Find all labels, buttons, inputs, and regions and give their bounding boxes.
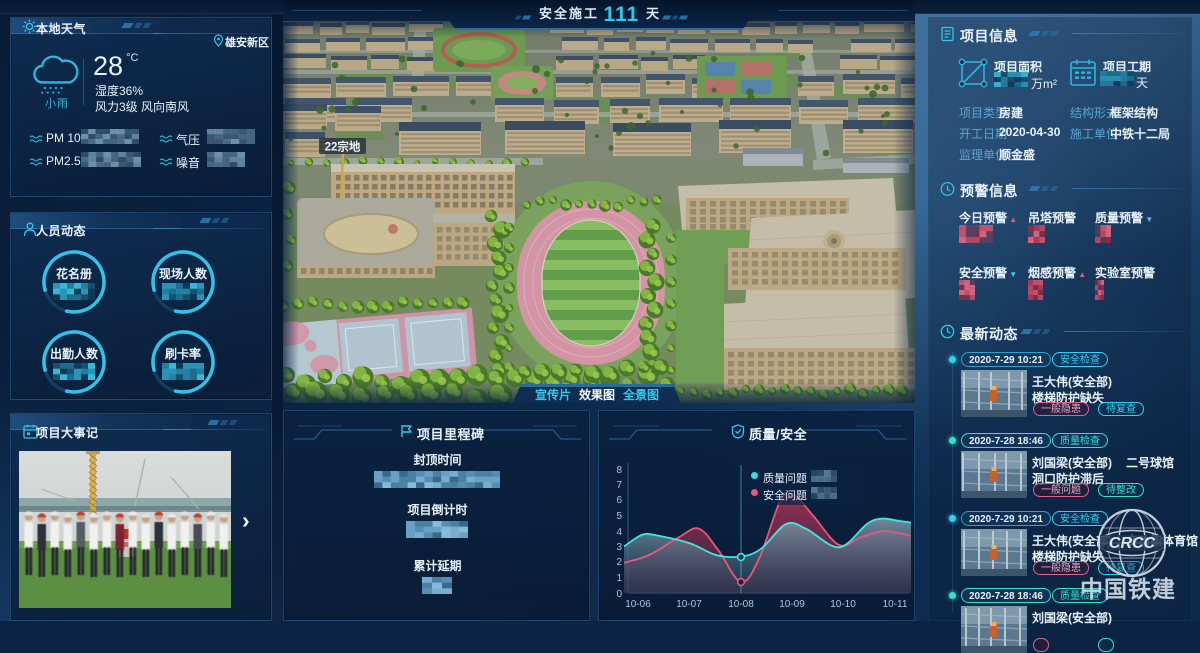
svg-text:3: 3 [616,542,622,553]
svg-text:10-08: 10-08 [728,599,754,610]
svg-text:6: 6 [616,495,622,506]
svg-text:10-06: 10-06 [625,599,651,610]
svg-text:8: 8 [616,465,622,476]
svg-text:10-09: 10-09 [779,599,805,610]
svg-text:22宗地: 22宗地 [325,140,361,154]
svg-text:10-07: 10-07 [676,599,702,610]
svg-text:5: 5 [616,511,622,522]
svg-text:0: 0 [616,589,622,600]
svg-text:7: 7 [616,480,622,491]
svg-text:宣传片: 宣传片 [535,387,571,402]
svg-text:2: 2 [616,557,622,568]
svg-text:效果图: 效果图 [579,387,615,402]
svg-text:10-11: 10-11 [883,599,908,610]
svg-text:1: 1 [616,573,622,584]
svg-text:CRCC: CRCC [1109,535,1156,552]
svg-text:全景图: 全景图 [622,387,659,402]
svg-text:10-10: 10-10 [830,599,856,610]
svg-text:4: 4 [616,527,622,538]
